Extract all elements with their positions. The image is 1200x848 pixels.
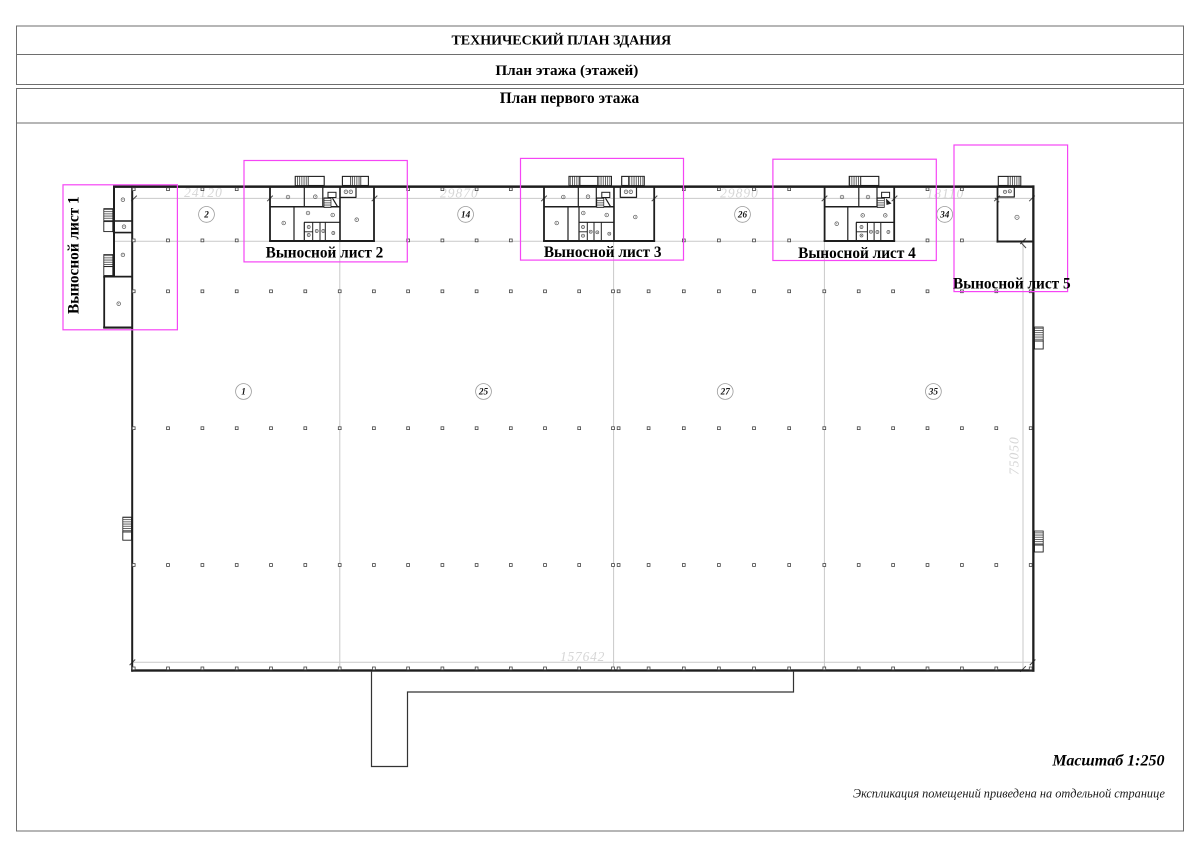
svg-text:Выносной лист 2: Выносной лист 2 [266, 245, 384, 262]
svg-text:34: 34 [939, 210, 950, 220]
svg-text:14: 14 [461, 210, 471, 220]
svg-text:Выносной лист 5: Выносной лист 5 [953, 275, 1071, 292]
svg-text:Выносной лист 3: Выносной лист 3 [544, 244, 662, 261]
svg-text:Масштаб 1:250: Масштаб 1:250 [1051, 753, 1164, 770]
svg-text:18110: 18110 [927, 186, 965, 201]
svg-text:26: 26 [737, 210, 748, 220]
svg-text:План первого этажа: План первого этажа [500, 90, 640, 107]
svg-text:35: 35 [928, 387, 939, 397]
svg-text:27: 27 [720, 387, 731, 397]
svg-text:Экспликация помещений приведен: Экспликация помещений приведена на отдел… [853, 787, 1166, 801]
svg-text:2: 2 [203, 210, 209, 220]
svg-text:75050: 75050 [1007, 436, 1022, 475]
svg-text:1: 1 [241, 387, 246, 397]
svg-text:25: 25 [478, 387, 489, 397]
svg-text:157642: 157642 [560, 649, 605, 664]
svg-text:Выносной лист 1: Выносной лист 1 [65, 196, 82, 314]
svg-text:План этажа (этажей): План этажа (этажей) [495, 62, 638, 79]
svg-text:29870: 29870 [440, 186, 479, 201]
svg-text:ТЕХНИЧЕСКИЙ ПЛАН ЗДАНИЯ: ТЕХНИЧЕСКИЙ ПЛАН ЗДАНИЯ [451, 31, 671, 48]
svg-text:Выносной лист 4: Выносной лист 4 [798, 245, 916, 262]
